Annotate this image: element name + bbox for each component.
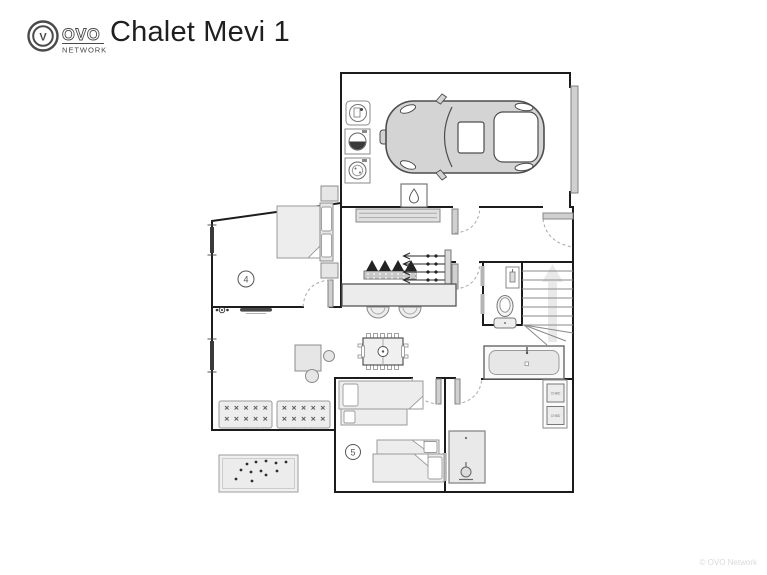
car-cabin (458, 122, 484, 153)
stool (306, 370, 319, 383)
single-bed (339, 381, 423, 409)
stairs-icon (522, 264, 573, 345)
stairs-direction-arrow (542, 264, 563, 342)
appliance-icon (346, 101, 370, 125)
doormat-icon (219, 455, 298, 492)
towel-heater: CHBD CHBD (543, 380, 567, 428)
double-bed (277, 206, 320, 258)
trundle-bed (341, 409, 407, 425)
washing-machine-icon (345, 129, 370, 154)
svg-text:5: 5 (350, 447, 355, 457)
door-bathroom (455, 378, 482, 404)
car-icon (380, 94, 544, 180)
bathroom: CHBD CHBD (449, 346, 567, 483)
side-table (295, 345, 321, 371)
pillow (322, 234, 332, 257)
floorplan-page: V OVO NETWORK Chalet Mevi 1 (0, 0, 767, 575)
toilet-icon (494, 296, 516, 329)
bedroom-4: 4 (216, 186, 338, 314)
bench (342, 284, 456, 306)
chair (367, 307, 389, 318)
svg-text:CHBD: CHBD (551, 414, 561, 418)
trundle-bed (377, 440, 439, 454)
door-garage-skiroom (452, 208, 480, 234)
room-5-label: 5 (346, 445, 361, 460)
wc-room (481, 266, 520, 328)
water-heater-drop-icon (401, 184, 427, 207)
boot-rack (219, 401, 272, 428)
pillow (428, 457, 442, 479)
shower-icon (449, 431, 485, 483)
foosball-table-icon (358, 334, 408, 370)
svg-text:4: 4 (243, 274, 248, 284)
nightstand (321, 186, 338, 201)
car-rear-window (494, 112, 538, 162)
wall-boiler-icon (506, 267, 519, 288)
boot-rack (277, 401, 330, 428)
radiator-icon (356, 209, 440, 222)
radiator-icon (481, 266, 485, 286)
garage (345, 86, 578, 207)
door-bedroom4 (303, 280, 333, 307)
floorplan-drawing: 4 (0, 0, 767, 575)
window-bedroom4 (210, 227, 214, 253)
bedroom-5: 5 (339, 381, 444, 482)
coat-hooks-icon (216, 307, 229, 313)
stool (324, 351, 335, 362)
shoe-shelf (240, 308, 272, 312)
nightstand (321, 263, 338, 278)
pillow (322, 207, 332, 231)
copyright-text: © OVO Network (700, 558, 757, 567)
garage-door (571, 86, 578, 193)
room-4-label: 4 (238, 271, 254, 287)
chair (399, 307, 421, 318)
window-hall (210, 341, 214, 370)
entry-door-leaf (543, 213, 573, 219)
bathtub-icon (484, 346, 564, 379)
radiator-icon (481, 294, 485, 314)
single-bed (373, 454, 444, 482)
tumble-dryer-icon (345, 158, 370, 183)
svg-text:CHBD: CHBD (551, 391, 561, 395)
ski-room (342, 209, 456, 318)
pillow (343, 384, 358, 406)
